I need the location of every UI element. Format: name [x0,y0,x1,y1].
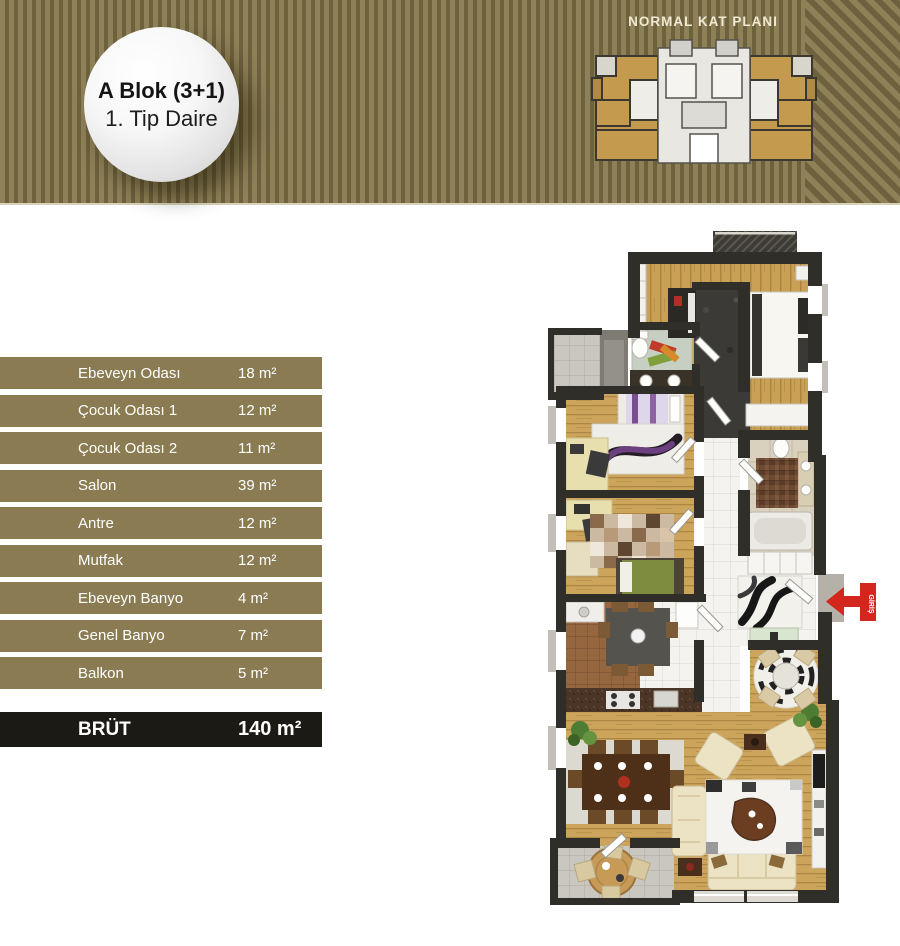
row-label: Salon [78,477,116,494]
row-label: Ebeveyn Odası [78,365,181,382]
row-label: Ebeveyn Banyo [78,590,183,607]
row-value: 11 m² [238,440,275,457]
row-label: Balkon [78,665,124,682]
row-label: Antre [78,515,114,532]
key-plan [586,38,822,178]
row-label: Mutfak [78,552,123,569]
row-value: 5 m² [238,665,268,682]
badge-subtitle: 1. Tip Daire [105,105,218,133]
keyplan-title: NORMAL KAT PLANI [628,14,778,29]
table-row: Mutfak 12 m² [0,545,322,577]
entrance-label: GİRİŞ [867,594,875,613]
table-row: Ebeveyn Banyo 4 m² [0,582,322,614]
total-label: BRÜT [78,719,131,741]
row-value: 7 m² [238,627,268,644]
table-row: Çocuk Odası 2 11 m² [0,432,322,464]
table-row: Antre 12 m² [0,507,322,539]
row-label: Çocuk Odası 1 [78,402,177,419]
banner: NORMAL KAT PLANI A Blok (3+1) 1. Tip Dai… [0,0,900,205]
total-row: BRÜT 140 m² [0,712,322,747]
table-row: Ebeveyn Odası 18 m² [0,357,322,389]
row-value: 12 m² [238,515,276,532]
table-row: Çocuk Odası 1 12 m² [0,395,322,427]
total-value: 140 m² [238,718,301,741]
row-value: 4 m² [238,590,268,607]
area-table: Ebeveyn Odası 18 m² Çocuk Odası 1 12 m² … [0,357,322,747]
row-value: 18 m² [238,365,276,382]
row-value: 12 m² [238,402,276,419]
table-row: Salon 39 m² [0,470,322,502]
badge-title: A Blok (3+1) [98,77,225,105]
row-value: 39 m² [238,477,276,494]
brochure-page: NORMAL KAT PLANI A Blok (3+1) 1. Tip Dai… [0,0,900,946]
table-row: Genel Banyo 7 m² [0,620,322,652]
block-badge: A Blok (3+1) 1. Tip Daire [84,27,239,182]
row-label: Genel Banyo [78,627,165,644]
row-value: 12 m² [238,552,276,569]
floor-plan: GİRİŞ [545,228,897,918]
row-label: Çocuk Odası 2 [78,440,177,457]
table-row: Balkon 5 m² [0,657,322,689]
